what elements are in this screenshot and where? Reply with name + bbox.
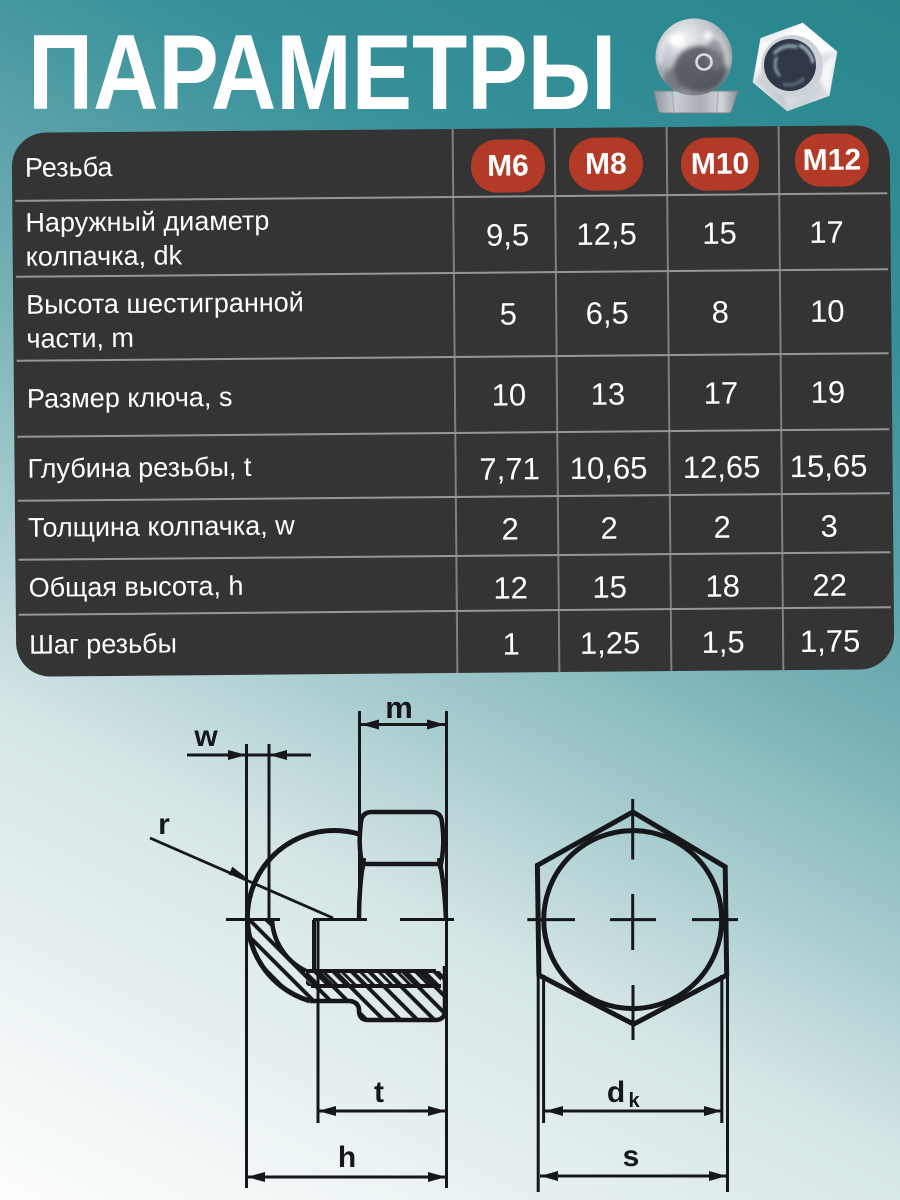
- svg-text:w: w: [193, 720, 218, 753]
- svg-text:h: h: [338, 1141, 356, 1174]
- svg-text:d: d: [607, 1076, 625, 1109]
- svg-text:k: k: [628, 1090, 640, 1112]
- svg-text:s: s: [623, 1140, 640, 1173]
- svg-text:m: m: [385, 690, 413, 725]
- svg-text:r: r: [158, 808, 170, 841]
- svg-text:t: t: [374, 1076, 384, 1109]
